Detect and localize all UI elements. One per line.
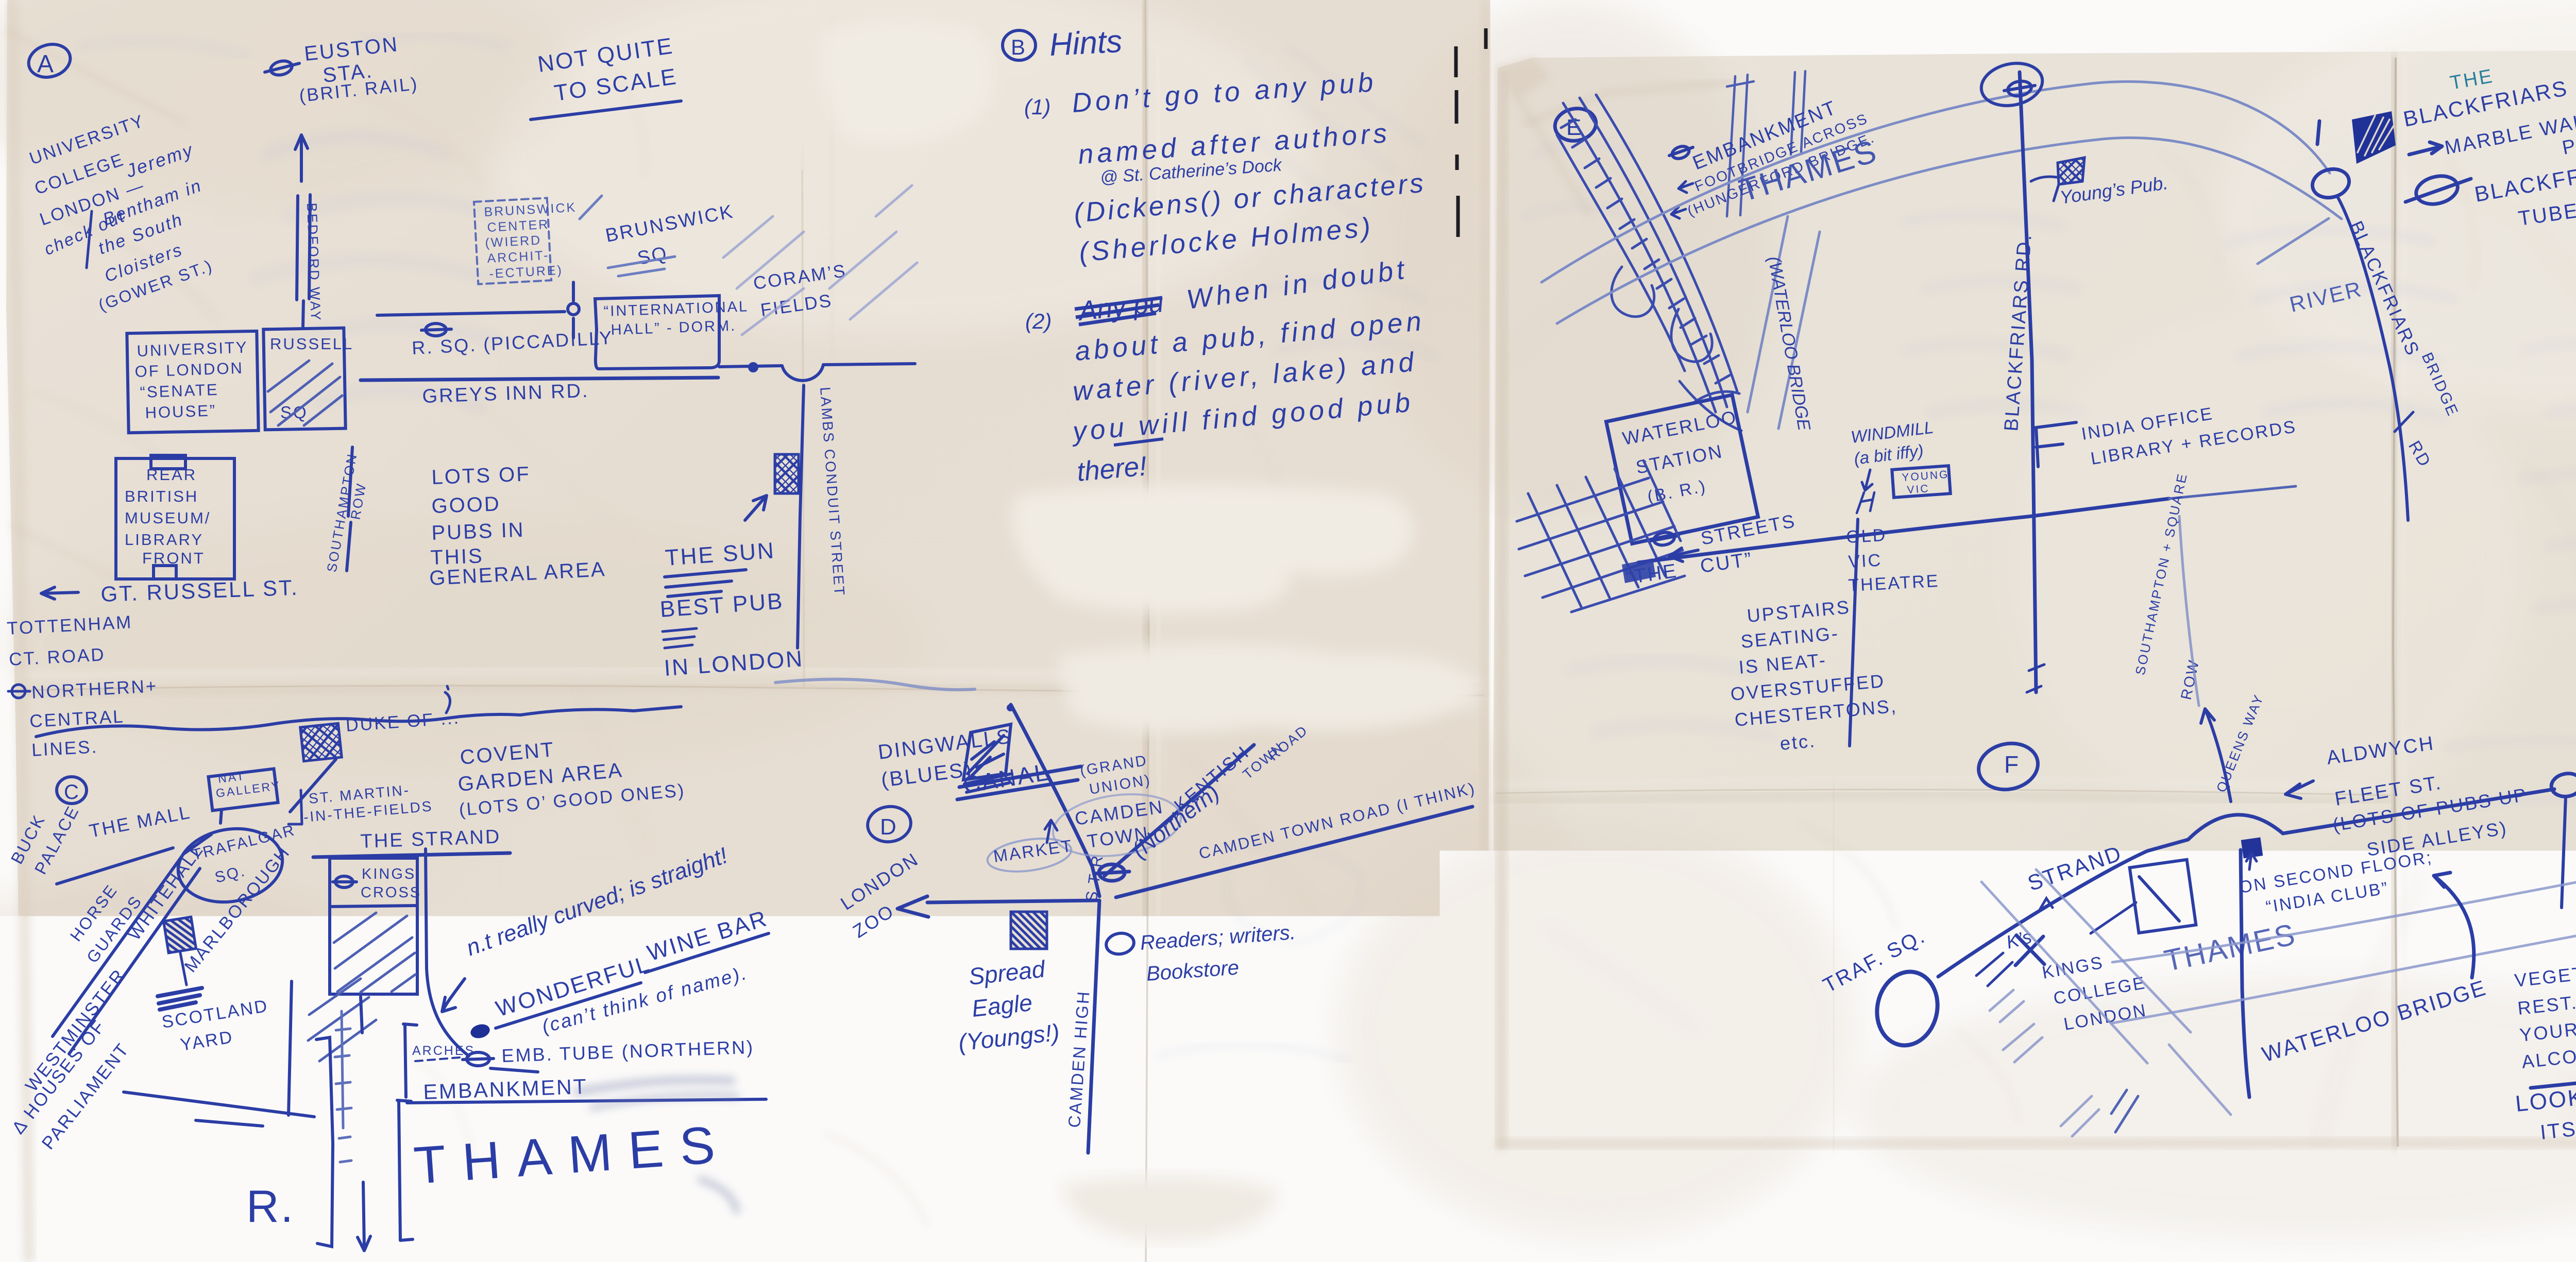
svg-text:C: C — [64, 781, 80, 804]
svg-text:etc.: etc. — [1779, 730, 1817, 754]
svg-text:(2): (2) — [1025, 309, 1052, 333]
svg-text:B: B — [1011, 35, 1027, 59]
svg-text:CROSS: CROSS — [361, 884, 421, 901]
svg-text:LINES.: LINES. — [31, 737, 98, 760]
svg-text:F: F — [2004, 751, 2020, 778]
svg-text:FRONT: FRONT — [142, 549, 205, 567]
svg-text:“SENATE: “SENATE — [140, 381, 219, 401]
svg-text:KINGS: KINGS — [362, 866, 416, 882]
svg-text:Hints: Hints — [1048, 24, 1123, 63]
svg-text:PUBS IN: PUBS IN — [431, 519, 525, 544]
svg-text:REAR: REAR — [146, 466, 197, 484]
svg-text:RUSSELL: RUSSELL — [270, 335, 353, 353]
svg-text:D: D — [880, 814, 898, 840]
svg-text:A: A — [37, 50, 55, 78]
svg-text:R.: R. — [246, 1181, 295, 1232]
svg-text:LIBRARY: LIBRARY — [125, 531, 204, 549]
svg-text:GOOD: GOOD — [431, 492, 501, 518]
svg-text:LOTS OF: LOTS OF — [431, 463, 531, 489]
svg-text:ARCHES: ARCHES — [412, 1044, 475, 1058]
svg-text:BRITISH: BRITISH — [125, 487, 198, 505]
svg-text:VIC: VIC — [1848, 551, 1883, 572]
svg-text:OF LONDON: OF LONDON — [134, 359, 244, 381]
svg-text:(WIERD: (WIERD — [485, 233, 542, 250]
svg-text:MUSEUM/: MUSEUM/ — [125, 509, 211, 527]
svg-text:HOUSE”: HOUSE” — [145, 401, 217, 422]
svg-text:OLD: OLD — [1845, 525, 1887, 547]
svg-text:there!: there! — [1076, 451, 1148, 487]
svg-text:(1): (1) — [1024, 95, 1050, 119]
svg-text:VIC: VIC — [1907, 483, 1930, 496]
